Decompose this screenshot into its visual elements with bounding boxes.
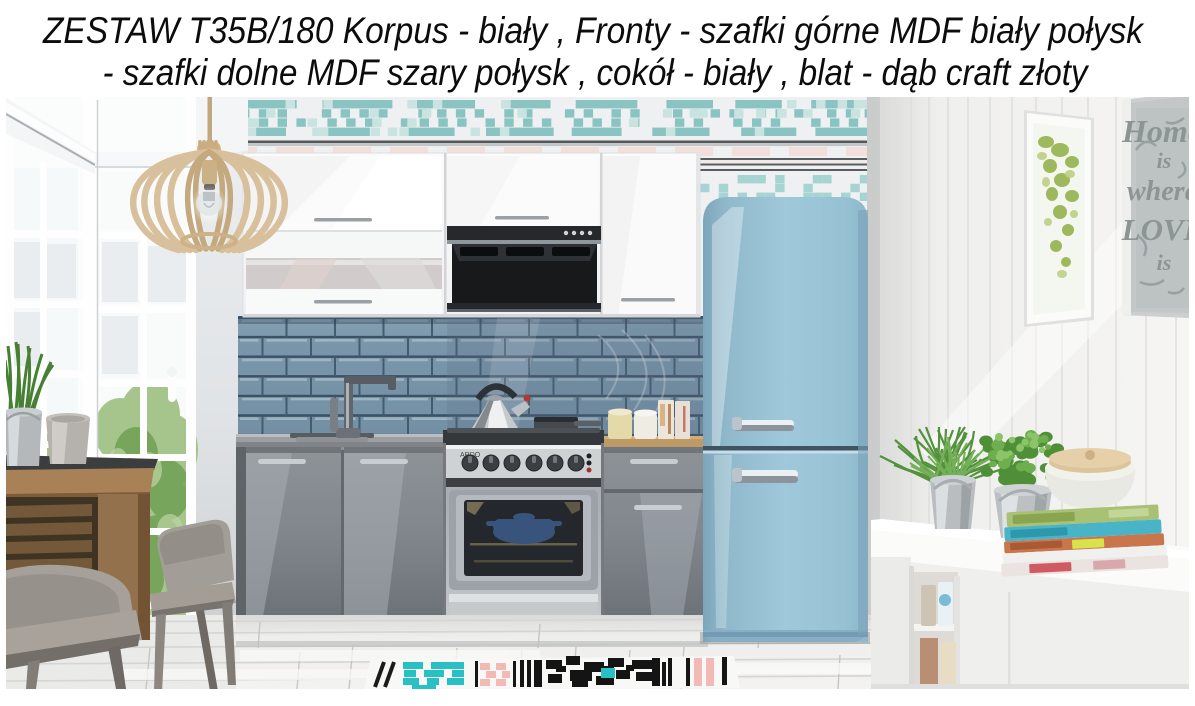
svg-text:where: where <box>1127 176 1195 207</box>
svg-text:LOVE: LOVE <box>1121 212 1195 247</box>
svg-text:ZESTAW T35B/180 Korpus - biały: ZESTAW T35B/180 Korpus - biały , Fronty … <box>42 10 1145 51</box>
svg-text:is: is <box>1157 250 1172 275</box>
svg-text:- szafki dolne MDF szary połys: - szafki dolne MDF szary połysk , cokół … <box>103 52 1090 93</box>
svg-text:is: is <box>1157 148 1172 173</box>
